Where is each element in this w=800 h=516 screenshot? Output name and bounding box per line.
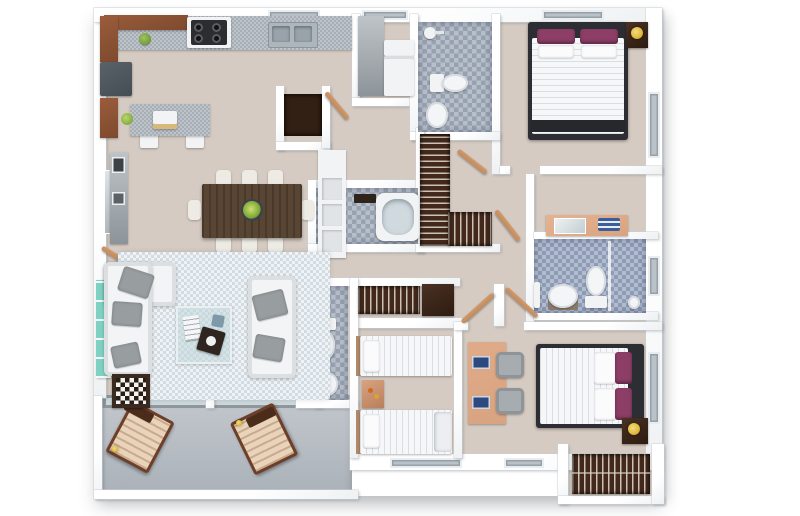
wall-balcony-bottom [94,490,358,499]
centerpiece-bowl [243,201,261,219]
entry-doormat [284,94,322,136]
wall-ensuite-left [526,174,534,322]
stove-burner [212,23,221,32]
toilet-bowl [442,74,468,92]
twin-nightstand [362,380,384,408]
window-bath-right [648,256,660,296]
sink-basin [272,26,290,42]
lounge-knob [112,446,118,452]
bath-shelf [354,194,376,203]
stove-burner [212,34,221,43]
towel-holder [534,282,540,308]
window-master-top [542,10,604,20]
sink-basin [294,26,312,42]
purple-pillow [537,29,575,44]
white-pillow [581,45,617,58]
window-master-right [648,92,660,158]
green-bowl [121,113,133,125]
washer [384,56,414,96]
purple-pillow [615,388,632,420]
wall-balcony-left [94,396,102,498]
floor-drain [628,296,640,309]
toilet-tank [585,296,607,308]
shower-partition [608,241,611,311]
floor-plan-render [0,0,800,516]
white-pillow [538,45,574,58]
twin-pillow [363,414,380,448]
dining-chair [188,200,201,220]
nightstand-decor [368,388,373,393]
dining-chair [216,236,231,253]
cabinet-left-top [100,16,118,62]
white-pillow [594,352,616,384]
wall-master-bottom-b [540,166,662,174]
cabinet-left-bottom [100,98,118,138]
sink [426,102,448,128]
table-decor [211,314,225,328]
purple-pillow [615,352,632,384]
window-bedroom3-bottom [504,458,544,468]
master-table-lamp [631,27,643,39]
stove-burner [194,23,203,32]
laptop [472,356,490,369]
wall-twin-right [454,330,462,458]
loveseat-pillow [252,334,286,363]
wall-bath4-bottom [296,400,358,408]
desk-chair [496,352,524,378]
closet-wardrobe-bottom [448,212,492,246]
dining-chair [268,236,283,253]
closet-wardrobe-vertical [420,134,450,246]
wall-master-bottom-a [500,166,510,174]
laptop [472,396,490,409]
tray-cup [206,336,216,346]
shelf-slot [322,230,342,252]
wall-bedroom3-top-b [524,322,662,330]
blanket-fold [434,412,452,452]
laundry-counter [384,40,414,56]
vanity-mirror [554,218,586,234]
desk-chair [496,388,524,414]
nook-wardrobe [572,454,650,494]
shower-arm [434,31,444,34]
foot-bench [530,120,626,132]
window-twin-bottom [390,458,462,468]
console-photo [112,157,125,173]
wall-bedroom3-door-stub [494,284,504,326]
plant [139,33,151,45]
shelf-slot [322,178,342,200]
window-bedroom3-right [648,352,660,424]
sofa-pillow [111,301,143,327]
dining-chair [301,200,314,220]
wall-nook-left [558,444,568,504]
stove-burner [194,34,203,43]
lounge-knob [236,420,242,426]
wall-laundry-bottom [352,98,418,106]
wall-nook-right [652,444,664,504]
wall-nook-bottom [558,496,664,504]
hall-closet-rod [358,286,420,314]
wall-ensuite-bottom [534,312,658,320]
toilet-bowl [586,266,606,296]
bed3-table-lamp [628,423,640,435]
refrigerator [100,62,132,96]
bathtub-basin [382,199,414,235]
nightstand-decor [374,394,379,399]
bowl-sink [548,284,578,308]
white-pillow [594,388,616,420]
laundry-cabinet [358,16,384,96]
hall-cabinet [422,284,454,316]
dining-chair [242,236,257,253]
chess-board [116,378,146,404]
twin-pillow [363,340,380,372]
console-photo [112,192,125,205]
wall-bedroom3-top-a [454,322,468,330]
wall-hall-closet-bottom [356,318,462,328]
nook-wardrobe-shelf [572,472,650,474]
purple-pillow [580,29,618,44]
blue-towels [598,218,620,231]
countertop-appliance [153,111,177,129]
wall-entry-left [276,86,284,150]
shelf-slot [322,204,342,226]
wall-bath1-right [492,14,500,174]
